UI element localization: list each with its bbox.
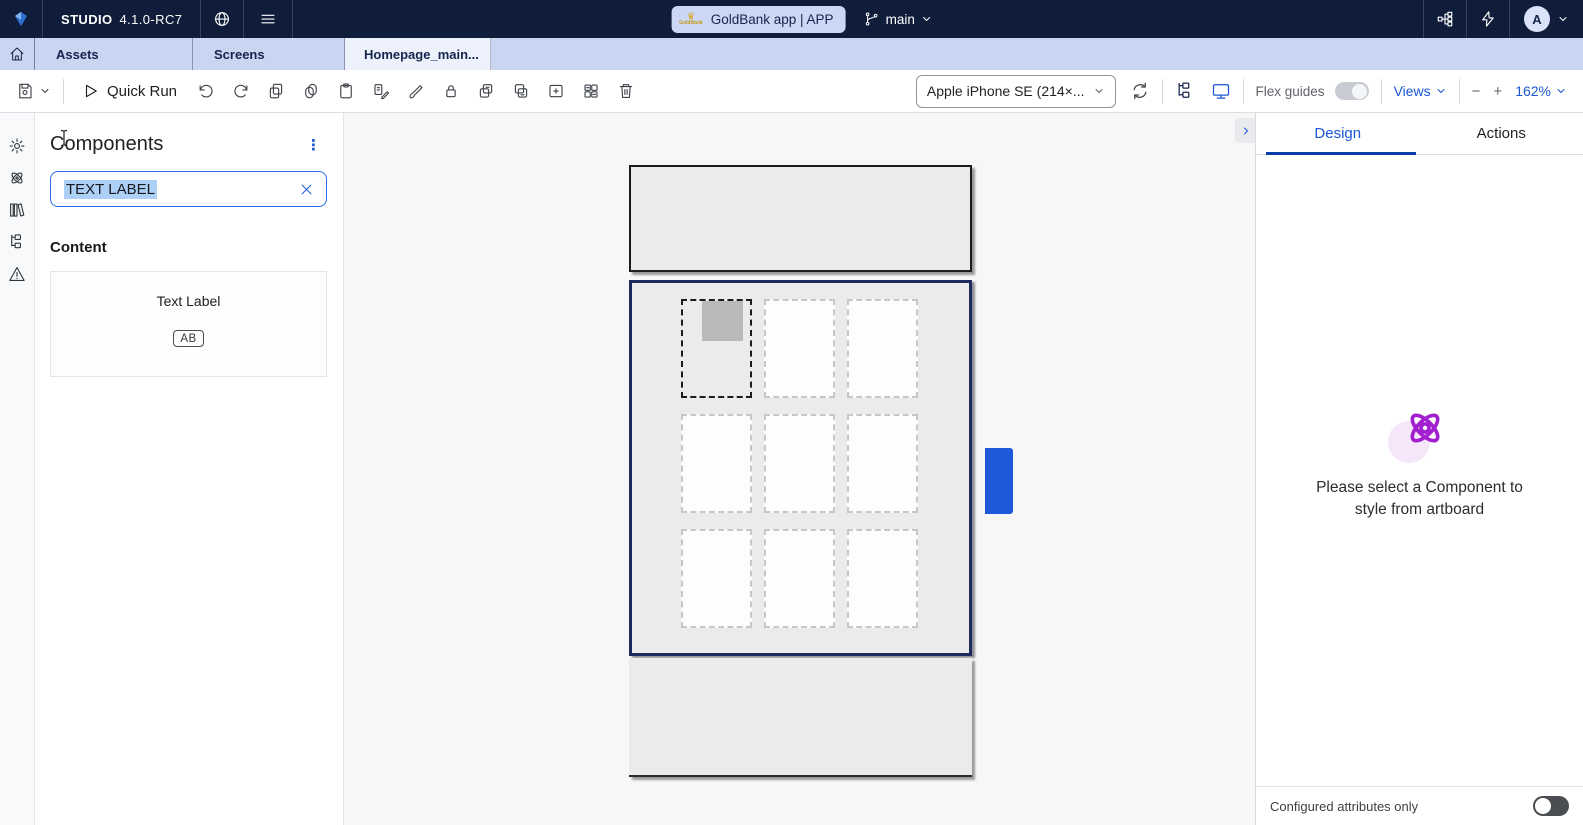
avatar: A (1524, 6, 1550, 32)
chevron-down-icon (921, 13, 933, 25)
divider (1381, 79, 1382, 104)
divider (1243, 79, 1244, 104)
configured-attributes-toggle[interactable] (1533, 796, 1569, 816)
chevron-down-icon (1557, 13, 1569, 25)
layout-grid-icon[interactable] (582, 82, 600, 100)
account-menu[interactable]: A (1510, 0, 1583, 38)
views-label: Views (1394, 83, 1431, 99)
tab-label: Homepage_main... (364, 47, 479, 62)
lightning-icon (1479, 10, 1497, 28)
goldbank-logo: ♛ GoldBank (679, 12, 703, 26)
grid-placeholder[interactable] (764, 529, 835, 628)
quick-run-label: Quick Run (107, 83, 177, 100)
text-label-ab-icon: AB (173, 330, 203, 347)
library-books-icon[interactable] (8, 201, 26, 219)
grid-placeholder[interactable] (681, 529, 752, 628)
chevron-down-icon (1093, 85, 1105, 97)
empty-state-message: Please select a Component to style from … (1314, 477, 1526, 522)
artboard-footer-block[interactable] (629, 658, 972, 777)
zoom-out-button[interactable]: − (1472, 83, 1481, 100)
artboard-selected-container[interactable] (629, 280, 972, 656)
tab-design[interactable]: Design (1256, 113, 1420, 154)
grid-placeholder[interactable] (764, 414, 835, 513)
component-search-input[interactable]: TEXT LABEL (50, 171, 327, 207)
main-menu-button[interactable] (244, 0, 292, 38)
brush-icon[interactable] (407, 82, 425, 100)
chevron-down-icon (39, 85, 51, 97)
home-icon (9, 46, 25, 62)
hierarchy-icon (1436, 10, 1454, 28)
artboard-header-block[interactable] (629, 165, 972, 272)
left-icon-strip (0, 113, 35, 825)
zoom-level: 162% (1515, 83, 1551, 99)
panel-title: Components (50, 133, 163, 156)
copy-format-icon[interactable] (372, 82, 390, 100)
grid-placeholder[interactable] (847, 299, 918, 398)
undo-icon[interactable] (197, 82, 215, 100)
chevron-right-icon (1240, 125, 1252, 137)
save-button[interactable] (16, 82, 51, 100)
warning-triangle-icon[interactable] (8, 265, 26, 283)
studio-logo-icon (12, 9, 30, 29)
home-button[interactable] (0, 38, 35, 70)
zoom-level-dropdown[interactable]: 162% (1515, 83, 1567, 99)
selection-drag-handle[interactable] (985, 448, 1013, 514)
tab-label: Assets (56, 47, 99, 62)
panel-menu-button[interactable]: ⋮ (300, 136, 327, 154)
component-card-text-label[interactable]: Text Label AB (50, 271, 327, 377)
design-canvas[interactable] (344, 113, 1255, 825)
device-selector[interactable]: Apple iPhone SE (214×... (916, 75, 1116, 108)
paste-style-icon[interactable] (512, 82, 530, 100)
collapse-panel-button[interactable] (1235, 118, 1257, 143)
preview-monitor-icon[interactable] (1211, 81, 1231, 101)
lock-icon[interactable] (442, 82, 460, 100)
artboard[interactable] (629, 165, 972, 777)
globe-icon (213, 10, 231, 28)
toolbar-right: Apple iPhone SE (214×... Flex guides Vie… (916, 75, 1567, 108)
grid-placeholder[interactable] (847, 529, 918, 628)
workspace-tabbar: Assets Screens Homepage_main... (0, 38, 1583, 70)
divider (1162, 79, 1163, 104)
add-frame-icon[interactable] (547, 82, 565, 100)
toggle-knob (1535, 798, 1551, 814)
divider (292, 0, 293, 38)
divider (63, 79, 64, 104)
zoom-controls: − + 162% (1472, 83, 1567, 100)
components-atom-icon[interactable] (8, 169, 26, 187)
toggle-knob (1352, 84, 1367, 99)
tree-structure-icon[interactable] (8, 233, 26, 251)
grid-placeholder[interactable] (764, 299, 835, 398)
search-value-selected: TEXT LABEL (64, 180, 157, 199)
app-selector[interactable]: ♛ GoldBank GoldBank app | APP (671, 6, 845, 33)
save-icon (16, 82, 34, 100)
brand-name: STUDIO (61, 12, 113, 27)
flex-guides-toggle[interactable] (1335, 82, 1369, 100)
dragged-component-preview (702, 301, 743, 341)
device-selector-value: Apple iPhone SE (214×... (927, 83, 1085, 99)
paste-icon[interactable] (337, 82, 355, 100)
atom-icon (1402, 405, 1448, 451)
locale-button[interactable] (201, 0, 243, 38)
duplicate-icon[interactable] (302, 82, 320, 100)
quick-run-button[interactable]: Quick Run (82, 82, 177, 100)
empty-state: Please select a Component to style from … (1256, 405, 1583, 522)
navbar-right: A (1423, 0, 1583, 38)
settings-gear-icon[interactable] (8, 137, 26, 155)
grid-placeholder[interactable] (847, 414, 918, 513)
copy-icon[interactable] (267, 82, 285, 100)
tab-homepage-main[interactable]: Homepage_main... (345, 38, 491, 70)
integrations-button[interactable] (1424, 0, 1466, 38)
app-name: GoldBank app | APP (711, 12, 834, 27)
git-branch-icon (864, 11, 880, 27)
quick-actions-button[interactable] (1467, 0, 1509, 38)
chevron-down-icon (1555, 85, 1567, 97)
components-panel: Components ⋮ TEXT LABEL Content Text Lab… (35, 113, 344, 825)
screen-tree-icon[interactable] (1175, 81, 1195, 101)
grid-placeholder[interactable] (681, 414, 752, 513)
chevron-down-icon (1435, 85, 1447, 97)
top-navbar: STUDIO 4.1.0-RC7 ♛ GoldBank GoldBank app… (0, 0, 1583, 38)
style-panel-tabs: Design Actions (1256, 113, 1583, 155)
tab-label: Screens (214, 47, 265, 62)
text-cursor-icon (58, 129, 70, 147)
tab-actions[interactable]: Actions (1420, 113, 1583, 154)
goldbank-logo-label: GoldBank (679, 21, 703, 26)
play-icon (82, 82, 100, 100)
studio-logo[interactable] (0, 0, 42, 38)
placeholder-grid (681, 299, 969, 628)
branch-name: main (886, 12, 915, 27)
configured-attributes-label: Configured attributes only (1270, 799, 1418, 814)
toolbar-icon-group (197, 82, 635, 100)
grid-placeholder-selected[interactable] (681, 299, 752, 398)
editor-toolbar: Quick Run (0, 70, 1583, 113)
copy-style-icon[interactable] (477, 82, 495, 100)
style-panel-footer: Configured attributes only (1256, 786, 1583, 825)
brand: STUDIO 4.1.0-RC7 (43, 0, 200, 38)
delete-icon[interactable] (617, 82, 635, 100)
style-panel: Design Actions Please select a Component… (1255, 113, 1583, 825)
component-label: Text Label (157, 293, 221, 309)
zoom-in-button[interactable]: + (1493, 83, 1502, 100)
tab-screens[interactable]: Screens (193, 38, 345, 70)
branch-selector[interactable]: main (864, 11, 933, 27)
hamburger-icon (259, 10, 277, 28)
brand-version: 4.1.0-RC7 (120, 12, 183, 27)
navbar-center: ♛ GoldBank GoldBank app | APP main (671, 0, 933, 38)
content-section-heading: Content (50, 239, 327, 256)
divider (1459, 79, 1460, 104)
refresh-icon[interactable] (1130, 81, 1150, 101)
redo-icon[interactable] (232, 82, 250, 100)
clear-search-icon[interactable] (299, 182, 314, 197)
views-dropdown[interactable]: Views (1394, 83, 1447, 99)
flex-guides-label: Flex guides (1256, 84, 1325, 99)
tab-assets[interactable]: Assets (35, 38, 193, 70)
